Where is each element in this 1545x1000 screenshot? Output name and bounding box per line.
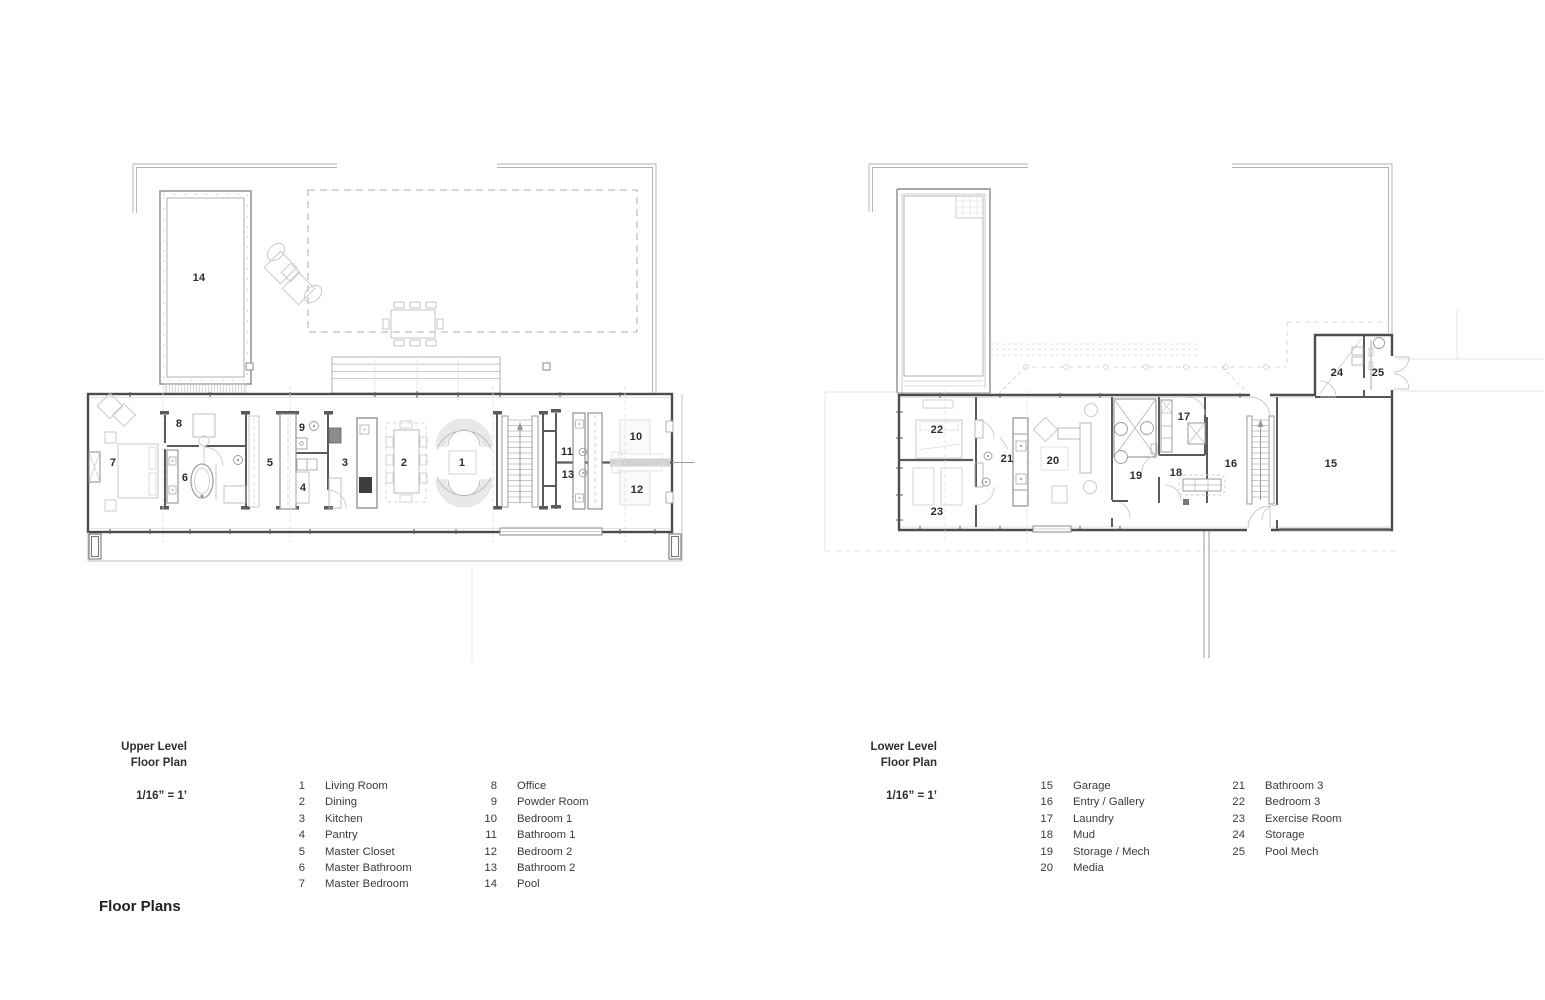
room-label-pool: 14 <box>193 272 206 284</box>
legend-row: 24Storage <box>1221 827 1342 843</box>
legend-num: 19 <box>1029 844 1053 860</box>
legend-row: 8Office <box>473 778 589 794</box>
lower-legend-col1: 15Garage 16Entry / Gallery 17Laundry 18M… <box>1029 778 1150 876</box>
room-label-pantry: 4 <box>300 482 306 494</box>
legend-label: Entry / Gallery <box>1073 794 1145 810</box>
legend-num: 6 <box>281 860 305 876</box>
legend-row: 9Powder Room <box>473 794 589 810</box>
legend-label: Living Room <box>325 778 388 794</box>
lower-sliding-door <box>1033 526 1071 532</box>
legend-num: 17 <box>1029 811 1053 827</box>
upper-scale: 1/16” = 1’ <box>65 790 187 802</box>
room-label-bedroom1: 10 <box>630 431 643 443</box>
upper-title-line1: Upper Level <box>65 740 187 756</box>
upper-left-fixture <box>89 452 100 482</box>
legend-label: Powder Room <box>517 794 589 810</box>
upper-deck-steps <box>332 357 500 393</box>
room-label-bathroom3: 21 <box>1001 453 1014 465</box>
legend-label: Garage <box>1073 778 1111 794</box>
lower-title-line1: Lower Level <box>815 740 937 756</box>
upper-sliding-door <box>500 528 602 535</box>
legend-num: 25 <box>1221 844 1245 860</box>
room-label-bathroom1: 11 <box>561 446 573 458</box>
legend-row: 11Bathroom 1 <box>473 827 589 843</box>
legend-label: Exercise Room <box>1265 811 1342 827</box>
room-label-mud: 18 <box>1170 467 1183 479</box>
legend-num: 21 <box>1221 778 1245 794</box>
legend-row: 20Media <box>1029 860 1150 876</box>
legend-label: Media <box>1073 860 1104 876</box>
legend-row: 15Garage <box>1029 778 1150 794</box>
room-label-powder-room: 9 <box>299 422 305 434</box>
upper-deck-outline <box>308 190 637 332</box>
legend-row: 18Mud <box>1029 827 1150 843</box>
legend-label: Bedroom 1 <box>517 811 572 827</box>
legend-num: 3 <box>281 811 305 827</box>
upper-legend-col1: 1Living Room 2Dining 3Kitchen 4Pantry 5M… <box>281 778 412 893</box>
legend-num: 12 <box>473 844 497 860</box>
lower-title-line2: Floor Plan <box>815 756 937 772</box>
room-label-pool-mech: 25 <box>1372 367 1385 379</box>
legend-label: Laundry <box>1073 811 1114 827</box>
legend-row: 17Laundry <box>1029 811 1150 827</box>
legend-num: 4 <box>281 827 305 843</box>
room-label-storage: 24 <box>1331 367 1344 379</box>
legend-row: 4Pantry <box>281 827 412 843</box>
room-label-living-room: 1 <box>459 457 465 469</box>
room-label-laundry: 17 <box>1178 411 1191 423</box>
legend-num: 14 <box>473 876 497 892</box>
room-label-exercise-room: 23 <box>931 506 944 518</box>
upper-plan-drawing <box>88 164 694 662</box>
room-label-dining: 2 <box>401 457 407 469</box>
legend-label: Kitchen <box>325 811 363 827</box>
room-label-media: 20 <box>1047 455 1060 467</box>
legend-label: Master Closet <box>325 844 395 860</box>
legend-row: 21Bathroom 3 <box>1221 778 1342 794</box>
legend-row: 22Bedroom 3 <box>1221 794 1342 810</box>
legend-num: 5 <box>281 844 305 860</box>
legend-num: 13 <box>473 860 497 876</box>
bathrooms-11-13 <box>573 413 602 509</box>
legend-num: 15 <box>1029 778 1053 794</box>
legend-row: 16Entry / Gallery <box>1029 794 1150 810</box>
walkway-lines <box>1204 531 1209 658</box>
room-label-master-bathroom: 6 <box>182 472 188 484</box>
lower-scale: 1/16” = 1’ <box>815 790 937 802</box>
room-label-entry-gallery: 16 <box>1225 458 1238 470</box>
upper-title-line2: Floor Plan <box>65 756 187 772</box>
upper-legend-col2: 8Office 9Powder Room 10Bedroom 1 11Bathr… <box>473 778 589 893</box>
upper-outdoor-table <box>383 302 443 346</box>
legend-label: Bathroom 2 <box>517 860 575 876</box>
room-label-bedroom3: 22 <box>931 424 944 436</box>
upper-building-shell <box>88 391 694 561</box>
legend-num: 7 <box>281 876 305 892</box>
legend-label: Bedroom 2 <box>517 844 572 860</box>
legend-row: 13Bathroom 2 <box>473 860 589 876</box>
legend-row: 12Bedroom 2 <box>473 844 589 860</box>
legend-num: 23 <box>1221 811 1245 827</box>
lower-pool <box>897 189 990 393</box>
legend-row: 23Exercise Room <box>1221 811 1342 827</box>
upper-plan-title: Upper Level Floor Plan <box>65 740 187 771</box>
legend-num: 8 <box>473 778 497 794</box>
legend-num: 10 <box>473 811 497 827</box>
legend-label: Storage <box>1265 827 1305 843</box>
legend-row: 19Storage / Mech <box>1029 844 1150 860</box>
lower-plan-title: Lower Level Floor Plan <box>815 740 937 771</box>
legend-num: 9 <box>473 794 497 810</box>
legend-num: 24 <box>1221 827 1245 843</box>
legend-label: Master Bathroom <box>325 860 412 876</box>
room-label-bedroom2: 12 <box>631 484 644 496</box>
legend-num: 16 <box>1029 794 1053 810</box>
lower-legend-col2: 21Bathroom 3 22Bedroom 3 23Exercise Room… <box>1221 778 1342 860</box>
room-label-bathroom2: 13 <box>562 469 575 481</box>
legend-num: 18 <box>1029 827 1053 843</box>
legend-row: 10Bedroom 1 <box>473 811 589 827</box>
legend-label: Dining <box>325 794 357 810</box>
legend-label: Office <box>517 778 546 794</box>
legend-label: Bathroom 1 <box>517 827 575 843</box>
room-label-office: 8 <box>176 418 182 430</box>
room-label-garage: 15 <box>1325 458 1338 470</box>
legend-row: 5Master Closet <box>281 844 412 860</box>
legend-label: Bathroom 3 <box>1265 778 1323 794</box>
upper-lounge-furniture <box>264 240 325 306</box>
legend-num: 22 <box>1221 794 1245 810</box>
legend-label: Pantry <box>325 827 358 843</box>
legend-num: 11 <box>473 827 497 843</box>
legend-row: 14Pool <box>473 876 589 892</box>
legend-label: Storage / Mech <box>1073 844 1150 860</box>
room-label-master-bedroom: 7 <box>110 457 116 469</box>
floor-plan-sheet: 14 7 8 6 5 9 4 3 2 1 11 13 10 12 22 23 2… <box>0 0 1545 1000</box>
legend-label: Pool Mech <box>1265 844 1318 860</box>
legend-label: Bedroom 3 <box>1265 794 1320 810</box>
legend-num: 1 <box>281 778 305 794</box>
legend-label: Pool <box>517 876 540 892</box>
room-label-kitchen: 3 <box>342 457 348 469</box>
legend-row: 1Living Room <box>281 778 412 794</box>
legend-row: 3Kitchen <box>281 811 412 827</box>
sheet-title: Floor Plans <box>99 898 181 915</box>
legend-row: 6Master Bathroom <box>281 860 412 876</box>
legend-num: 20 <box>1029 860 1053 876</box>
legend-row: 2Dining <box>281 794 412 810</box>
room-label-storage-mech: 19 <box>1130 470 1143 482</box>
legend-row: 7Master Bedroom <box>281 876 412 892</box>
upper-pool <box>160 191 251 394</box>
legend-label: Mud <box>1073 827 1095 843</box>
legend-num: 2 <box>281 794 305 810</box>
legend-label: Master Bedroom <box>325 876 409 892</box>
room-label-master-closet: 5 <box>267 457 273 469</box>
legend-row: 25Pool Mech <box>1221 844 1342 860</box>
